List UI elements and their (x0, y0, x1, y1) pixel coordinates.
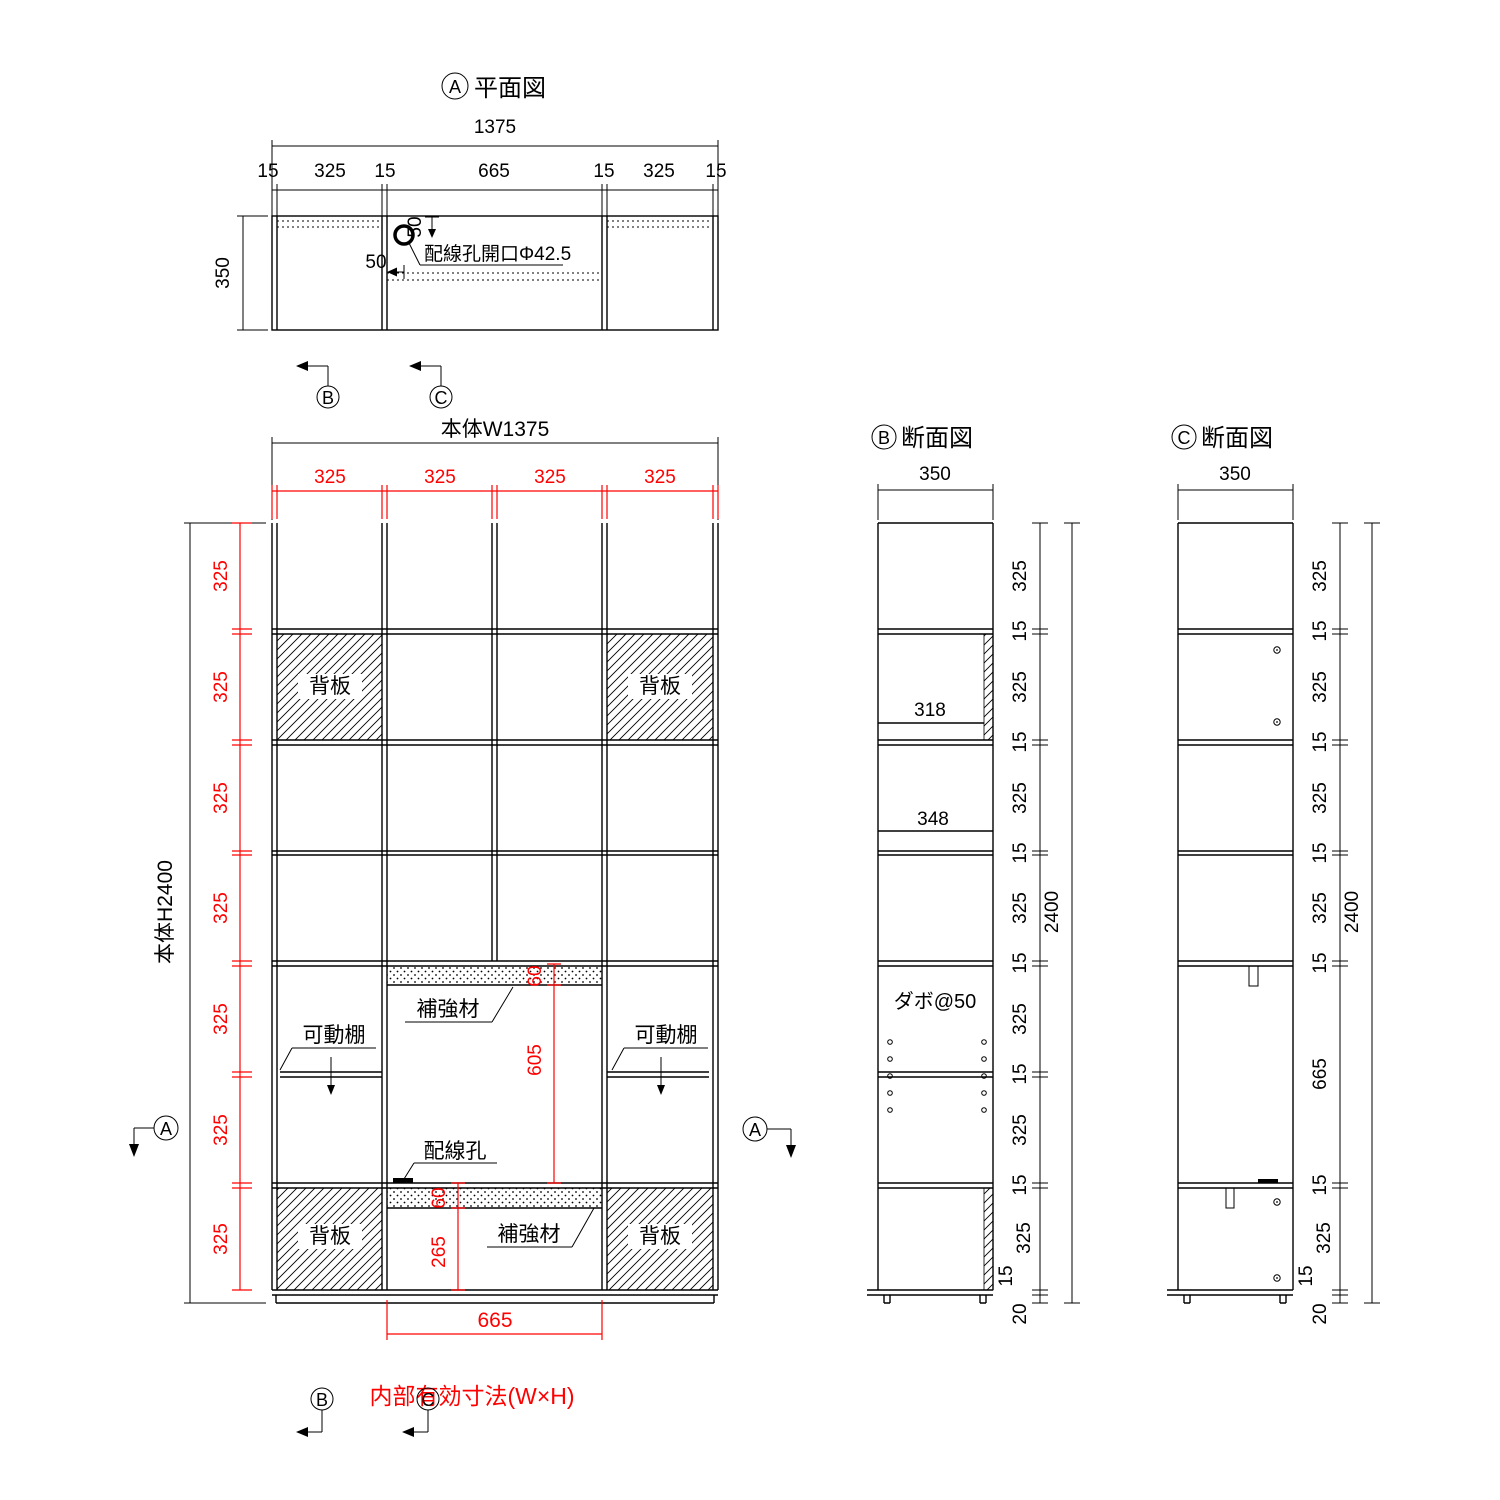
plan-cut-c-label: C (435, 388, 448, 408)
plan-partitions (277, 216, 713, 330)
section-b-depth: 350 (919, 464, 951, 485)
section-c-chain-8: 665 (1310, 1058, 1331, 1090)
elevation-row-dim-3: 325 (211, 782, 232, 814)
section-c-view: C 断面図 350 325 15 325 15 325 15 325 15 66… (1167, 425, 1380, 1325)
section-b-chain-12: 325 (1014, 1222, 1035, 1254)
elevation-col-dim-2: 325 (424, 467, 456, 488)
opening-top-depth: 60 (525, 965, 546, 986)
section-c-title-marker: C (1178, 428, 1191, 448)
section-c-depth: 350 (1219, 464, 1251, 485)
elevation-width-label: 本体W1375 (441, 418, 550, 441)
plan-title: 平面図 (474, 75, 546, 102)
movable-shelf-label-right: 可動棚 (635, 1024, 698, 1047)
section-b-total-dim-line (1064, 523, 1080, 1303)
section-b-chain-14: 20 (1010, 1303, 1031, 1324)
plan-chain-665: 665 (478, 161, 510, 182)
section-b-title-marker: B (878, 428, 890, 448)
plan-chain-15-4: 15 (705, 161, 726, 182)
plan-chain-325-1: 325 (314, 161, 346, 182)
opening-width: 665 (477, 1309, 512, 1332)
movable-shelf-arrowheads (327, 1085, 665, 1095)
section-c-chain-4: 325 (1310, 782, 1331, 814)
section-b-clear-depth-open: 348 (917, 809, 949, 830)
section-a-right-leader (767, 1129, 791, 1145)
section-c-chain-12: 20 (1310, 1303, 1331, 1324)
section-b-chain-3: 15 (1010, 731, 1031, 752)
wiring-hole-label: 配線孔 (424, 1140, 487, 1163)
section-c-screws (1274, 647, 1280, 1281)
section-b-chain-4: 325 (1010, 782, 1031, 814)
elevation-column-chain (272, 485, 718, 519)
section-a-marker-left: A (160, 1119, 172, 1139)
plan-hole-offset-side: 50 (365, 252, 386, 273)
section-b-depth-dim-lines (878, 484, 993, 520)
section-b-back-panel-row2 (984, 634, 993, 740)
section-c-chain-0: 325 (1310, 560, 1331, 592)
section-c-chain-11: 15 (1296, 1265, 1317, 1286)
section-b-back-panel-row7 (984, 1188, 993, 1290)
plan-depth: 350 (213, 257, 234, 289)
section-b-total-height: 2400 (1042, 891, 1063, 933)
section-b-dowel-holes (888, 1040, 987, 1113)
back-panel-label-row7-left: 背板 (309, 1225, 351, 1248)
inner-dimension-note: 内部有効寸法(W×H) (369, 1383, 574, 1409)
elevation-cut-b-arrow (296, 1427, 308, 1437)
elevation-row-dim-7: 325 (211, 1223, 232, 1255)
elevation-row-dim-4: 325 (211, 892, 232, 924)
section-b-chain-6: 325 (1010, 892, 1031, 924)
section-b-chain-11: 15 (1010, 1174, 1031, 1195)
back-panel-label-row2-right: 背板 (639, 675, 681, 698)
section-a-left-arrow (129, 1144, 139, 1157)
back-panel-label-row2-left: 背板 (309, 675, 351, 698)
plan-hole-label: 配線孔開口Φ42.5 (424, 243, 571, 265)
section-c-chain-2: 325 (1310, 671, 1331, 703)
section-c-chain-6: 325 (1310, 892, 1331, 924)
section-b-clear-depth-back: 318 (914, 700, 946, 721)
section-b-chain-7: 15 (1010, 952, 1031, 973)
section-b-dowel-label: ダボ@50 (894, 990, 977, 1013)
plan-body-outline (272, 216, 718, 330)
plan-hole-dim-arrow-down (428, 229, 436, 238)
section-a-right-arrow (786, 1145, 796, 1158)
bottom-reinforcement-depth: 60 (429, 1187, 450, 1208)
elevation-cut-c-arrow (402, 1427, 414, 1437)
movable-shelf-arrow-lines (331, 1057, 661, 1089)
section-c-structure (1167, 523, 1293, 1303)
plan-depth-dimension-lines (237, 216, 268, 330)
plan-cut-b-label: B (322, 388, 334, 408)
plan-chain-325-2: 325 (643, 161, 675, 182)
plan-hole-offset-top: 50 (405, 216, 426, 237)
plan-view: A 平面図 1375 15 325 15 665 15 325 15 350 5… (213, 73, 727, 408)
section-c-chain-5: 15 (1310, 842, 1331, 863)
elevation-col-dim-4: 325 (644, 467, 676, 488)
section-b-structure (867, 523, 993, 1303)
elevation-col-dim-1: 325 (314, 467, 346, 488)
elevation-row-dim-6: 325 (211, 1114, 232, 1146)
section-c-reinforcement-bottom (1226, 1188, 1234, 1208)
drawing-sheet: A 平面図 1375 15 325 15 665 15 325 15 350 5… (0, 0, 1500, 1500)
section-b-chain-10: 325 (1010, 1114, 1031, 1146)
plan-cut-c-arrow (409, 361, 421, 371)
section-b-chain-8: 325 (1010, 1003, 1031, 1035)
section-c-chain-3: 15 (1310, 731, 1331, 752)
elevation-cut-c-label: C (422, 1390, 435, 1410)
section-b-chain-5: 15 (1010, 842, 1031, 863)
wiring-hole-mark (393, 1178, 413, 1183)
section-c-depth-dim-lines (1178, 484, 1293, 520)
plan-chain-15-3: 15 (593, 161, 614, 182)
section-b-chain-1: 15 (1010, 620, 1031, 641)
movable-shelf-label-left: 可動棚 (303, 1024, 366, 1047)
section-a-marker-right: A (749, 1120, 761, 1140)
front-elevation: 本体W1375 325 325 325 325 本体H2400 325 325 … (129, 418, 796, 1437)
back-panel-label-row7-right: 背板 (639, 1225, 681, 1248)
section-b-view: B 断面図 350 318 348 ダボ@50 325 15 325 15 32… (867, 425, 1080, 1325)
reinforcement-label-top: 補強材 (417, 998, 480, 1021)
section-c-wiring-hole-mark (1258, 1179, 1278, 1184)
reinforcement-strip-bottom (387, 1188, 602, 1208)
opening-height: 605 (525, 1044, 546, 1076)
elevation-row-dim-2: 325 (211, 671, 232, 703)
elevation-row-chain (232, 523, 252, 1290)
section-c-reinforcement-top (1249, 966, 1258, 986)
section-b-chain-9: 15 (1010, 1063, 1031, 1084)
section-b-chain-0: 325 (1010, 560, 1031, 592)
plan-cut-b-arrow (296, 361, 308, 371)
bottom-opening-height: 265 (429, 1236, 450, 1268)
section-b-chain-2: 325 (1010, 671, 1031, 703)
section-c-chain-7: 15 (1310, 952, 1331, 973)
elevation-cut-b-label: B (316, 1390, 328, 1410)
elevation-col-dim-3: 325 (534, 467, 566, 488)
section-c-chain-9: 15 (1310, 1174, 1331, 1195)
reinforcement-strip-top (387, 966, 602, 985)
section-c-title: 断面図 (1201, 425, 1273, 452)
plan-title-marker: A (449, 77, 461, 97)
section-b-title: 断面図 (901, 425, 973, 452)
section-c-total-height: 2400 (1342, 891, 1363, 933)
plan-chain-15-2: 15 (374, 161, 395, 182)
plan-chain-15-1: 15 (257, 161, 278, 182)
section-b-chain-13: 15 (996, 1265, 1017, 1286)
plan-hole-dim-arrow-left (387, 268, 397, 277)
plan-overall-width: 1375 (474, 117, 516, 138)
elevation-row-dim-5: 325 (211, 1003, 232, 1035)
reinforcement-label-bottom: 補強材 (498, 1223, 561, 1246)
elevation-row-dim-1: 325 (211, 560, 232, 592)
section-c-chain-1: 15 (1310, 620, 1331, 641)
cabinet-technical-drawing: A 平面図 1375 15 325 15 665 15 325 15 350 5… (0, 0, 1500, 1500)
elevation-height-label: 本体H2400 (154, 860, 177, 964)
section-c-total-dim-line (1364, 523, 1380, 1303)
section-c-chain-10: 325 (1314, 1222, 1335, 1254)
section-a-left-leader (134, 1128, 154, 1144)
